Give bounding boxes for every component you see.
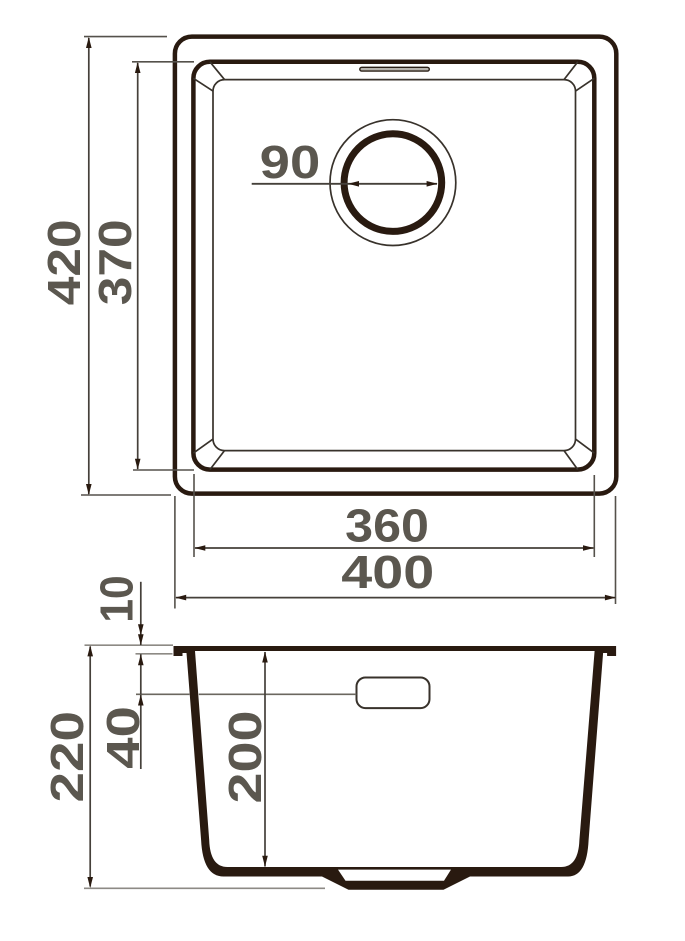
svg-text:420: 420 [38,219,90,305]
svg-text:400: 400 [341,546,434,598]
svg-text:220: 220 [41,711,93,803]
svg-text:10: 10 [91,575,143,622]
svg-text:360: 360 [345,499,429,551]
svg-text:90: 90 [260,136,321,188]
svg-text:200: 200 [219,711,271,804]
svg-text:370: 370 [89,219,141,305]
svg-text:40: 40 [97,706,149,769]
